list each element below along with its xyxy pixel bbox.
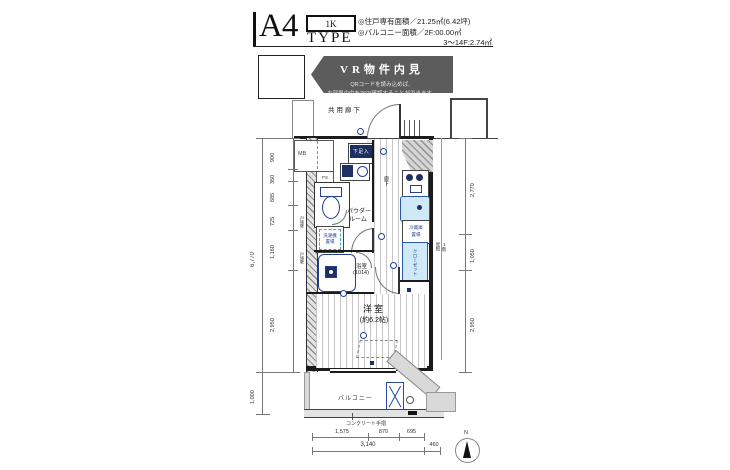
dim-left-seg-1: 900 <box>270 144 276 162</box>
wall-top-left <box>294 136 367 139</box>
dim-right-tick-1 <box>459 234 472 235</box>
bath-drain-icon <box>325 266 337 278</box>
vr-desc-2: お部屋の中を360°確認することができます。 <box>311 89 453 97</box>
upper-structure-right-r <box>486 98 488 138</box>
dim-bottom-total-tick-1 <box>312 447 313 455</box>
roof-note-2: 屋根 <box>435 242 441 251</box>
fridge-box: 冷蔵庫 置場 <box>402 220 430 244</box>
room-size-label: (約6.2帖) <box>344 315 404 325</box>
symbol-dot-6 <box>340 290 347 297</box>
water-heater-box <box>342 165 353 177</box>
symbol-sq-1 <box>370 361 374 365</box>
dim-balcony-line <box>262 372 263 414</box>
dim-balcony-depth: 1,000 <box>250 382 256 404</box>
dim-right-seg-3: 2,950 <box>470 310 476 332</box>
washer-box: 洗濯機 置場 <box>316 226 344 253</box>
dim-left-tick-top <box>256 138 300 139</box>
dim-right-seg-2: 1,050 <box>470 241 476 263</box>
bathroom-door-arc <box>356 252 372 268</box>
balcony-label: バルコニー <box>338 393 373 402</box>
dim-bottom-total-line <box>312 451 424 452</box>
dim-bottom-seg-3: 695 <box>399 429 424 435</box>
kitchen-sink <box>400 196 430 222</box>
window-sash-bottom <box>330 371 396 373</box>
fridge-label-2: 置場 <box>403 232 429 237</box>
entrance-side-hatch <box>402 140 433 172</box>
entrance-door-leaf <box>399 104 401 138</box>
balcony-left-wall <box>304 372 310 412</box>
compass-n-label: N <box>464 430 468 436</box>
room-name-label: 洋室 <box>344 302 404 315</box>
dim-bottom-extra-line <box>424 451 440 452</box>
hall-wall <box>372 140 374 222</box>
dim-left-tick-3 <box>288 205 298 206</box>
dim-bottom-total: 3,140 <box>312 442 424 448</box>
dim-right-seg-1: 2,770 <box>470 175 476 197</box>
dim-right-tick-bottom <box>459 372 472 373</box>
stove-burner-1 <box>406 174 413 181</box>
shoe-box-label: 下足入 <box>353 148 370 155</box>
layout-badge-text: 1K <box>326 19 337 29</box>
dim-right-line <box>465 138 466 372</box>
closet: クローゼット <box>402 242 428 282</box>
plan-type-label: A4 <box>259 8 297 45</box>
doorbell-icon <box>357 128 364 135</box>
room-door-leaf <box>398 267 400 294</box>
plan-type-suffix: TYPE <box>307 30 353 47</box>
shoe-box: 下足入 <box>350 145 372 158</box>
dim-balcony-tick <box>256 414 270 415</box>
dim-left-seg-4: 725 <box>270 208 276 226</box>
faucet-icon <box>417 205 422 210</box>
floorplan-page: A4 1K TYPE ◎住戸専有面積／21.25㎡(6.42坪) ◎バルコニー面… <box>0 0 730 470</box>
symbol-sq-2 <box>407 288 411 292</box>
symbol-dot-1 <box>380 148 387 155</box>
dim-left-tick-4 <box>288 230 298 231</box>
pipe-space-label: PS <box>322 175 328 180</box>
vr-banner: VR物件内見 QRコードを読み込めば、 お部屋の中を360°確認することができま… <box>311 56 453 93</box>
bathroom-label-2: (1014) <box>353 270 369 276</box>
qr-box <box>258 55 305 99</box>
dim-bottom-extra-tick <box>440 447 441 455</box>
vr-desc-1: QRコードを読み込めば、 <box>311 80 453 88</box>
washer-label-2: 置場 <box>317 239 343 244</box>
dim-left-inner-line <box>293 138 294 372</box>
compass-icon <box>455 438 480 463</box>
party-wall-label-2: 戸境壁 <box>299 252 305 264</box>
symbol-dot-3 <box>390 262 397 269</box>
dim-left-outer-line <box>262 138 263 372</box>
handrail-label: コンクリート手摺 <box>346 420 386 427</box>
party-wall-label-1: 戸境壁 <box>299 216 305 228</box>
fridge-label-1: 冷蔵庫 <box>403 225 429 230</box>
dim-left-seg-6: 2,950 <box>270 310 276 332</box>
closet-bottom-wall <box>400 280 433 282</box>
header-divider <box>253 46 493 47</box>
powder-room-label-2: ルーム <box>349 214 367 223</box>
wash-basin-icon <box>357 166 368 177</box>
balcony-rail <box>304 409 444 418</box>
dim-left-total: 6,770 <box>250 243 256 267</box>
stove-burner-2 <box>416 174 423 181</box>
stove-box <box>402 170 429 198</box>
handrail-leader <box>352 413 353 420</box>
bathroom-top-wall <box>314 250 374 252</box>
area-line-1: ◎住戸専有面積／21.25㎡(6.42坪) <box>358 16 470 27</box>
neighbor-strip <box>426 392 456 412</box>
upper-structure-right-top <box>450 98 488 100</box>
dim-left-tick-1 <box>288 169 298 170</box>
symbol-dot-4 <box>360 332 367 339</box>
upper-structure-right-l <box>450 98 452 138</box>
dim-right-tick-2 <box>459 270 472 271</box>
roof-note-1: 1階 <box>441 242 447 252</box>
drain-circle <box>406 396 414 404</box>
meter-box-label: MB <box>298 151 306 157</box>
vr-title: VR物件内見 <box>311 61 453 77</box>
dim-left-tick-5 <box>288 270 298 271</box>
dim-left-seg-5: 1,160 <box>270 239 276 259</box>
stove-grill <box>410 185 422 193</box>
entrance-door-arc <box>367 104 400 138</box>
hallway-label: 廊下 <box>383 176 390 186</box>
dim-right-tick-top <box>459 138 472 139</box>
dim-bottom-seg-tick-1 <box>312 433 313 441</box>
dim-left-seg-2: 350 <box>270 166 276 184</box>
upper-structure-left <box>292 100 314 139</box>
bathtub-icon <box>318 254 356 292</box>
dim-bottom-seg-tick-4 <box>424 433 425 441</box>
rail-block <box>408 411 417 415</box>
dim-bottom-extra: 460 <box>426 442 442 448</box>
dim-bottom-seg-2: 870 <box>368 429 399 435</box>
washer-label-1: 洗濯機 <box>317 233 343 238</box>
dim-left-seg-3: 685 <box>270 184 276 202</box>
bath-drain-dot <box>329 270 333 274</box>
symbol-dot-2 <box>378 233 385 240</box>
header-bar <box>253 12 256 47</box>
common-corridor-label: 共用廊下 <box>328 104 362 114</box>
dim-bottom-seg-1: 1,575 <box>316 429 368 435</box>
dim-left-tick-2 <box>288 181 298 182</box>
closet-label: クローゼット <box>412 249 418 276</box>
compass-needle <box>463 441 471 458</box>
mb-drain-line <box>317 141 318 169</box>
